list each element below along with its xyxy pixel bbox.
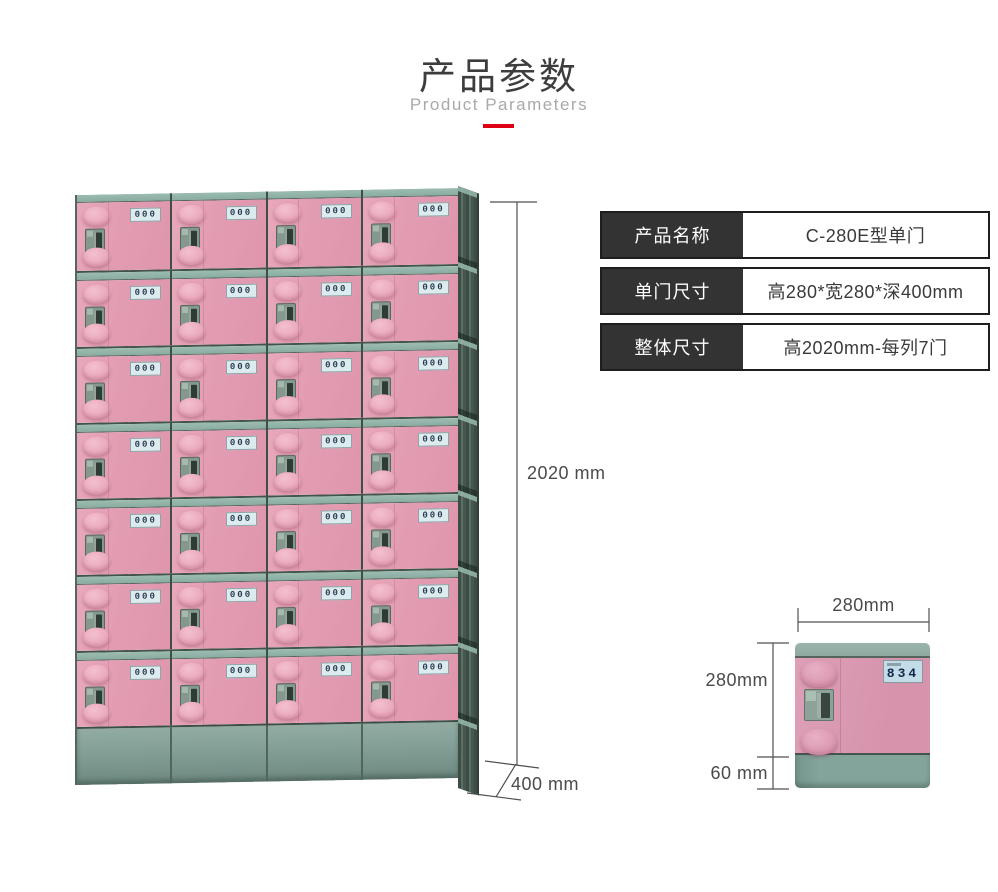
door-face: 000 [268,198,361,268]
hinge-bump-bottom [83,323,110,342]
door-face: 000 [77,507,170,575]
hinge-bump-top [801,661,837,687]
hinge-bump-bottom [178,550,205,569]
door-number-plate: 000 [418,356,449,371]
hinge-bump-top [178,587,205,606]
hinge-bump-bottom [178,322,205,341]
door-number-plate: 000 [226,436,257,451]
door-number-plate: 000 [321,510,352,525]
door-face: 000 [77,201,170,271]
door-face: 000 [172,582,265,650]
locker-door: 000 [77,345,172,423]
locker-base [77,720,458,785]
door-number-plate: 000 [130,513,161,528]
door-face: 000 [363,426,458,494]
hinge-bump-top [274,357,301,376]
hinge-bump-bottom [274,244,301,263]
hinge-bump-bottom [801,729,837,755]
dim-label-door-width: 280mm [798,595,929,616]
locker-door: 000 [172,343,267,421]
dim-label-base-height: 60 mm [698,763,768,784]
door-detail: 834 [795,643,930,790]
locker-door: 000 [268,646,363,724]
door-number-plate: 000 [130,285,161,300]
door-face: 000 [172,506,265,574]
door-face: 000 [363,654,458,722]
door-number-plate: 000 [226,664,257,679]
spec-table: 产品名称 C-280E型单门 单门尺寸 高280*宽280*深400mm 整体尺… [600,211,990,379]
door-face: 000 [172,430,265,498]
door-number-plate: 000 [226,588,257,603]
hinge-bump-bottom [178,626,205,645]
spec-label-product-name: 产品名称 [602,213,743,257]
locker-base-segment [77,727,172,785]
locker-door: 000 [77,497,172,575]
locker-door: 000 [77,573,172,651]
hinge-bump-top [274,585,301,604]
door-number-plate: 000 [418,508,449,523]
locker-door: 000 [363,340,458,418]
hinge-bump-bottom [369,242,396,261]
door-number-plate: 000 [226,360,257,375]
door-number-plate: 000 [418,202,449,217]
hinge-bump-bottom [369,318,396,337]
door-handle [804,689,834,721]
spec-label-door-size: 单门尺寸 [602,269,743,313]
door-face: 000 [363,578,458,646]
locker-door: 000 [363,264,458,342]
door-face: 000 [268,580,361,648]
hinge-bump-top [369,431,396,450]
spec-value-overall-size: 高2020mm-每列7门 [743,325,988,369]
door-number-plate: 000 [321,434,352,449]
hinge-bump-top [369,279,396,298]
hinge-bump-top [178,435,205,454]
locker-door: 000 [363,416,458,494]
hinge-bump-top [274,509,301,528]
locker-door: 000 [363,492,458,570]
locker-side-panel [458,186,479,796]
door-number-plate: 000 [418,432,449,447]
page-subtitle: Product Parameters [0,95,998,115]
hinge-bump-top [178,283,205,302]
door-face: 000 [268,656,361,724]
door-face: 000 [77,583,170,651]
hinge-bump-top [369,355,396,374]
door-face: 000 [268,428,361,496]
door-number-plate: 000 [130,589,161,604]
hinge-bump-top [274,203,301,222]
hinge-bump-top [369,583,396,602]
hinge-bump-bottom [178,474,205,493]
door-number-plate: 000 [321,662,352,677]
locker-door: 000 [77,649,172,727]
door-face: 000 [363,502,458,570]
hinge-bump-top [83,512,110,531]
door-detail-face: 834 [795,658,930,753]
door-number-plate: 000 [226,512,257,527]
door-number-plate: 000 [226,284,257,299]
locker-door: 000 [172,495,267,573]
door-detail-top-frame [795,643,930,658]
hinge-bump-top [274,661,301,680]
door-detail-base [795,753,930,788]
door-face: 000 [268,352,361,420]
accent-underline [483,124,514,128]
locker-door: 000 [268,266,363,344]
locker-door: 000 [363,644,458,722]
door-face: 000 [268,504,361,572]
hinge-bump-bottom [274,700,301,719]
locker-door: 000 [172,267,267,345]
locker-door: 000 [268,190,363,268]
door-number-plate: 000 [321,586,352,601]
hinge-bump-bottom [178,398,205,417]
table-row: 产品名称 C-280E型单门 [600,211,990,259]
hinge-bump-bottom [83,475,110,494]
hinge-bump-top [369,201,396,220]
locker-door: 000 [172,419,267,497]
hinge-bump-top [83,284,110,303]
spec-value-product-name: C-280E型单门 [743,213,988,257]
door-face: 000 [172,354,265,422]
hinge-bump-top [178,359,205,378]
hinge-bump-bottom [83,551,110,570]
door-face: 000 [172,658,265,726]
door-face: 000 [77,279,170,347]
door-number-plate: 834 [883,660,923,683]
hinge-bump-top [274,433,301,452]
door-number-plate: 000 [226,206,257,221]
hinge-bump-bottom [274,320,301,339]
door-number-plate: 000 [130,665,161,680]
hinge-bump-bottom [274,624,301,643]
hinge-bump-top [83,360,110,379]
hinge-bump-top [369,659,396,678]
door-face: 000 [363,196,458,266]
door-face: 000 [363,350,458,418]
hinge-bump-bottom [369,470,396,489]
locker-door: 000 [77,269,172,347]
door-number-plate: 000 [130,437,161,452]
door-number-plate: 000 [418,660,449,675]
door-number-plate: 000 [321,282,352,297]
hinge-bump-top [83,664,110,683]
dim-label-depth: 400 mm [511,774,579,795]
door-number-plate: 000 [321,358,352,373]
dim-label-height: 2020 mm [527,463,606,484]
door-face: 000 [172,278,265,346]
hinge-bump-top [178,511,205,530]
door-number-plate: 000 [321,204,352,219]
door-number: 834 [887,667,919,680]
locker-door: 000 [363,568,458,646]
locker-door: 000 [363,188,458,266]
locker-base-segment [363,722,458,780]
hinge-bump-top [274,281,301,300]
locker-cabinet-front: 0000000000000000000000000000000000000000… [75,188,458,785]
page-title: 产品参数 [0,46,998,100]
locker-door: 000 [172,571,267,649]
dim-label-door-height: 280mm [698,670,768,691]
locker-door: 000 [268,570,363,648]
door-number-plate: 000 [130,361,161,376]
locker-door-grid: 0000000000000000000000000000000000000000… [77,188,458,727]
hinge-bump-bottom [369,698,396,717]
door-face: 000 [77,431,170,499]
hinge-bump-bottom [369,622,396,641]
locker-door: 000 [268,418,363,496]
hinge-bump-top [369,507,396,526]
hinge-bump-top [83,436,110,455]
hinge-bump-bottom [274,472,301,491]
door-number-plate: 000 [130,207,161,222]
locker-base-segment [268,724,363,782]
hinge-bump-bottom [83,703,110,722]
hinge-bump-bottom [83,247,110,266]
hinge-bump-bottom [274,396,301,415]
door-face: 000 [363,274,458,342]
hinge-bump-top [178,663,205,682]
hinge-bump-bottom [83,627,110,646]
hinge-bump-top [178,205,205,224]
spec-value-door-size: 高280*宽280*深400mm [743,269,988,313]
table-row: 整体尺寸 高2020mm-每列7门 [600,323,990,371]
locker-door: 000 [77,421,172,499]
locker-base-segment [172,725,267,783]
locker-door: 000 [172,191,267,269]
door-face: 000 [172,200,265,270]
hinge-bump-bottom [83,399,110,418]
hinge-bump-bottom [274,548,301,567]
locker-door: 000 [77,193,172,271]
door-number-plate: 000 [418,280,449,295]
hinge-bump-bottom [369,394,396,413]
hinge-bump-bottom [178,702,205,721]
product-parameters-page: 产品参数 Product Parameters 产品名称 C-280E型单门 单… [0,0,998,892]
locker-door: 000 [268,342,363,420]
door-face: 000 [77,659,170,727]
hinge-bump-top [83,588,110,607]
locker-door: 000 [268,494,363,572]
door-number-plate: 000 [418,584,449,599]
hinge-bump-top [83,206,110,225]
hinge-bump-bottom [369,546,396,565]
spec-label-overall-size: 整体尺寸 [602,325,743,369]
table-row: 单门尺寸 高280*宽280*深400mm [600,267,990,315]
locker-door: 000 [172,647,267,725]
hinge-bump-bottom [178,246,205,265]
door-face: 000 [77,355,170,423]
door-face: 000 [268,276,361,344]
